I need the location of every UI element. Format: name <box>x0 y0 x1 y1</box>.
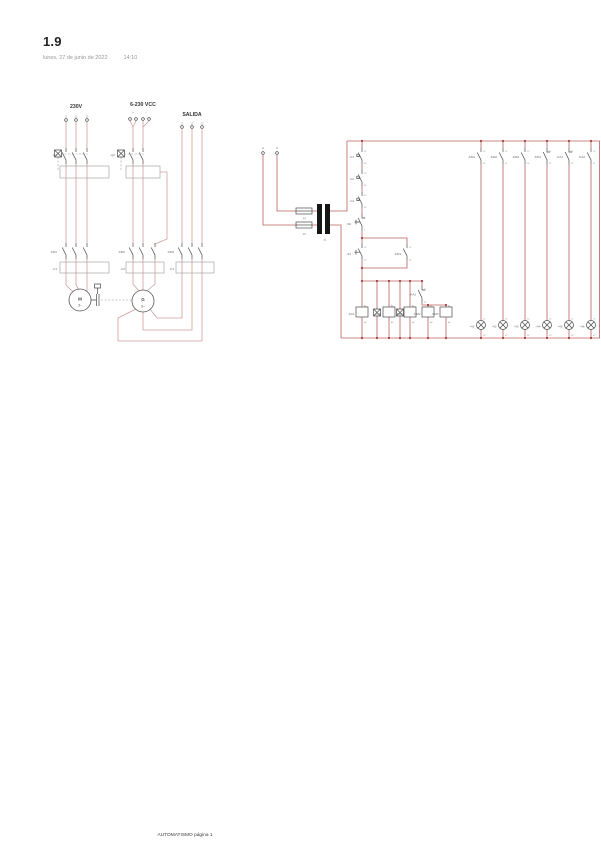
phase-label: L2 <box>191 124 194 126</box>
contact-label: -KA2 <box>409 293 416 297</box>
breaker-q2-label: -Q2 <box>110 153 115 157</box>
terminal-number: 14 <box>527 163 530 165</box>
terminal-number: X2 <box>571 335 574 337</box>
terminal-number: 96 <box>364 185 367 187</box>
terminal-number: 21 <box>549 151 552 153</box>
transformer-secondary <box>325 204 330 234</box>
phase-label: L3 <box>86 117 89 119</box>
contactor-km1-label: -KM1 <box>50 250 57 254</box>
aux-contact-km1-no <box>477 148 481 164</box>
schematic-diagram: 230V 6-230 VCC SALIDA L1 L2 L3 + − L1 L2… <box>0 0 601 848</box>
page-footer: AUTOMATISMO página 1 <box>0 833 370 838</box>
terminal-number: X1 <box>593 319 596 321</box>
contact-label: -F2 <box>350 177 355 181</box>
fuse-f4 <box>296 208 312 214</box>
junction-dots <box>361 140 592 339</box>
phase-label: L2 <box>75 117 78 119</box>
isolator-block-g1 <box>60 166 109 178</box>
lamp-label: -H3 <box>514 325 519 329</box>
contactor-km2-label: -KM2 <box>118 250 125 254</box>
terminal-number: X1 <box>527 319 530 321</box>
contact-label: -F3 <box>350 199 355 203</box>
contact-label: -S1 <box>346 252 351 256</box>
motor-phases: 3~ <box>78 304 82 308</box>
seal-contact-km1 <box>403 244 407 260</box>
fuse-f5 <box>296 222 312 228</box>
coil-ka1 <box>356 307 368 317</box>
breaker-q1-pole <box>72 148 76 164</box>
terminal-number: 21 <box>571 151 574 153</box>
terminal-number: 22 <box>549 163 552 165</box>
terminal-number: X1 <box>505 319 508 321</box>
thermal-f2-label: -F2 <box>121 267 126 271</box>
overload-contact-f3 <box>357 192 362 208</box>
output-terminal <box>191 126 194 129</box>
breaker-q2-pole <box>139 148 143 164</box>
lamp-label: -H6 <box>580 325 585 329</box>
terminal-number: 95 <box>364 151 367 153</box>
breaker-q1-pole <box>62 148 66 164</box>
terminal-number: 95 <box>364 173 367 175</box>
transformer-label: -T1 <box>323 240 327 242</box>
lamp-label: -H1 <box>470 325 475 329</box>
contactor-km1-pole <box>62 243 66 259</box>
aux-contact-label: -KM1 <box>534 155 541 159</box>
terminal-number: X2 <box>593 335 596 337</box>
terminal-number: 14 <box>364 260 367 262</box>
aux-contact-label: -KA2 <box>578 155 585 159</box>
output-terminal <box>201 126 204 129</box>
terminal-number: 95 <box>364 195 367 197</box>
start-button-s1 <box>354 244 362 260</box>
aux-contact-label: -KA1 <box>556 155 563 159</box>
contact-label: -F1 <box>350 155 355 159</box>
terminal-number: 13 <box>593 151 596 153</box>
dc-terminal <box>135 118 138 121</box>
terminal-number: A2 <box>391 321 394 324</box>
section-title-vcc: 6-230 VCC <box>130 102 156 108</box>
contactor-km3-pole <box>188 243 192 259</box>
terminal-number: A2 <box>412 321 415 324</box>
coil-km1 <box>383 307 395 317</box>
coil-label: -KM1 <box>374 312 381 316</box>
terminal-number: 96 <box>364 163 367 165</box>
terminal-number: 96 <box>364 207 367 209</box>
breaker-linkage-dashes <box>58 154 144 300</box>
lamp-label: -H4 <box>536 325 541 329</box>
section-title-230v: 230V <box>70 104 83 110</box>
lamp-h1 <box>477 321 486 330</box>
contact-label: -S0 <box>346 222 351 226</box>
terminal-number: X2 <box>505 335 508 337</box>
terminal-number: X1 <box>483 319 486 321</box>
terminal-number: X2 <box>483 335 486 337</box>
thermal-f1-label: -F1 <box>53 267 58 271</box>
coil-km3 <box>440 307 452 317</box>
terminal-number: 13 <box>364 247 367 249</box>
lamp-h6 <box>587 321 596 330</box>
control-wires <box>263 141 600 338</box>
thermal-block-f1 <box>60 262 109 273</box>
aux-contact-label: -KM1 <box>468 155 475 159</box>
aux-contact-km2-no <box>499 148 503 164</box>
dc-terminal <box>129 118 132 121</box>
contactor-km1-pole <box>83 243 87 259</box>
motor-letter: M <box>78 297 82 302</box>
terminal-number: 22 <box>571 163 574 165</box>
control-supply-terminal <box>262 152 265 155</box>
dc-plus-label: + <box>132 110 134 114</box>
coil-label: -KA2 <box>396 312 403 316</box>
terminal-number: 13 <box>409 247 412 249</box>
terminal-number: 2 <box>364 230 366 232</box>
dc-minus-label: − <box>145 110 147 114</box>
breaker-q2-pole <box>129 148 133 164</box>
lamp-label: -H2 <box>492 325 497 329</box>
terminal-number: X1 <box>571 319 574 321</box>
contact-label: -KM1 <box>394 252 401 256</box>
supply-terminal <box>65 119 68 122</box>
contactor-km2-pole <box>139 243 143 259</box>
fuse-f4-label: -F4 <box>302 219 306 221</box>
generator-phases: 3~ <box>141 305 145 309</box>
contactor-km2-pole <box>129 243 133 259</box>
supply-terminal <box>86 119 89 122</box>
control-src-label: L1 <box>262 148 265 150</box>
terminal-number: 22 <box>424 302 427 304</box>
coil-label: -KM3 <box>431 312 438 316</box>
supply-terminal <box>75 119 78 122</box>
terminal-number: X2 <box>549 335 552 337</box>
lamp-h4 <box>543 321 552 330</box>
generator-letter: G <box>141 297 145 302</box>
phase-label: L1 <box>181 124 184 126</box>
terminal-number: A2 <box>448 321 451 324</box>
contactor-km3-pole <box>178 243 182 259</box>
terminal-number: A2 <box>430 321 433 324</box>
control-src-label: N <box>276 148 278 150</box>
lamp-label: -H5 <box>558 325 563 329</box>
aux-contact-km3-no <box>521 148 525 164</box>
output-terminal <box>181 126 184 129</box>
transformer-primary <box>317 204 322 234</box>
dc-terminal <box>142 118 145 121</box>
overload-contact-f1 <box>357 148 362 164</box>
contactor-km3-pole <box>198 243 202 259</box>
dc-terminal <box>148 118 151 121</box>
breaker-q2-release-box <box>118 150 125 157</box>
terminal-number: 13 <box>483 151 486 153</box>
contactor-km1-pole <box>72 243 76 259</box>
lamp-h2 <box>499 321 508 330</box>
thermal-f3-label: -F3 <box>170 267 175 271</box>
terminal-number: 14 <box>593 163 596 165</box>
terminal-number: 14 <box>409 260 412 262</box>
phase-label: L1 <box>65 117 68 119</box>
overload-contact-f2 <box>357 170 362 186</box>
contactor-km2-pole <box>151 243 155 259</box>
terminal-number: 13 <box>527 151 530 153</box>
thermal-block-f2 <box>126 262 164 273</box>
terminal-number: 13 <box>505 151 508 153</box>
phase-label: L3 <box>201 124 204 126</box>
lamp-h3 <box>521 321 530 330</box>
coil-label: -KA1 <box>348 312 355 316</box>
terminal-number: 14 <box>483 163 486 165</box>
terminal-number: X1 <box>549 319 552 321</box>
terminal-number: X2 <box>527 335 530 337</box>
document-page: 1.9 lunes, 27 de junio de 202214:10 <box>0 0 601 848</box>
terminal-number: 14 <box>505 163 508 165</box>
breaker-q1-pole <box>83 148 87 164</box>
lamp-h5 <box>565 321 574 330</box>
coil-label: -KM2 <box>413 312 420 316</box>
terminal-number: A2 <box>364 321 367 324</box>
section-title-salida: SALIDA <box>182 112 202 118</box>
control-supply-terminal <box>276 152 279 155</box>
brush-gear <box>91 284 101 306</box>
fuse-f5-label: -F5 <box>302 234 306 236</box>
terminal-number: 1 <box>364 217 366 219</box>
aux-contact-ka2-no <box>587 148 591 164</box>
aux-contact-label: -KM2 <box>490 155 497 159</box>
terminal-number: 21 <box>424 289 427 291</box>
breaker-q1-label: -Q1 <box>52 153 57 157</box>
contactor-km3-label: -KM3 <box>167 250 174 254</box>
aux-contact-label: -KM3 <box>512 155 519 159</box>
